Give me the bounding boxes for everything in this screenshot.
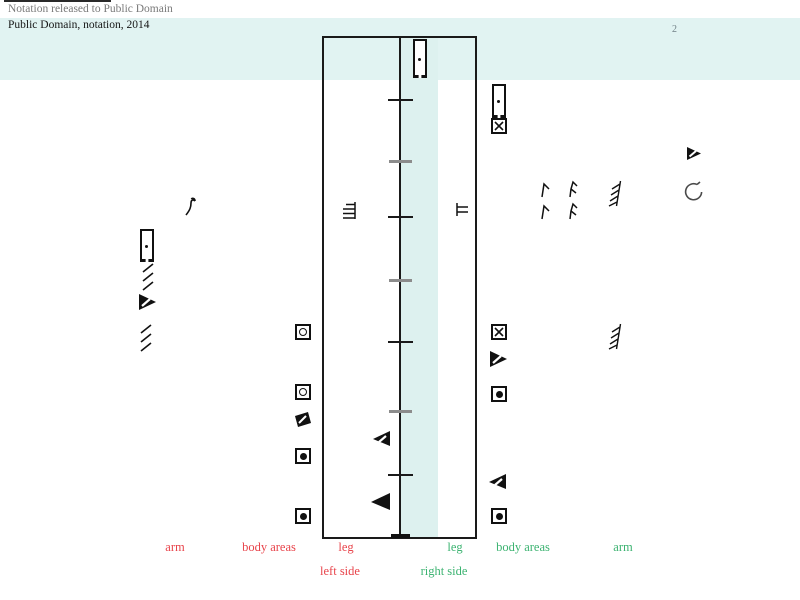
beat-tick [388, 474, 413, 476]
x-glyph [493, 326, 505, 338]
dot-square-icon [295, 448, 311, 464]
x-square-icon [491, 324, 507, 340]
beat-tick [388, 341, 413, 343]
presign-box-dot-icon [140, 229, 154, 262]
staff-centerline [399, 36, 401, 537]
release-note: Notation released to Public Domain [8, 3, 173, 16]
triple-bar-icon [342, 201, 357, 220]
presign-box-dot-icon [492, 84, 506, 118]
double-hook-flag-icon [567, 180, 580, 199]
dot-glyph [496, 391, 503, 398]
ring-square-icon [295, 384, 311, 400]
x-square-icon [491, 118, 507, 134]
ring-glyph [299, 328, 307, 336]
dot-square-icon [491, 508, 507, 524]
side-label-right: right side [421, 565, 468, 579]
dot-glyph [496, 513, 503, 520]
presign-dashed-base [413, 75, 427, 78]
hook-flag-icon [539, 202, 551, 220]
slashed-triangle-right-icon [488, 349, 509, 369]
dot-square-icon [491, 386, 507, 402]
top-edge-line [4, 0, 111, 2]
solid-triangle-left-icon [369, 491, 392, 511]
presign-dot [418, 58, 421, 61]
column-label-body-areas-right: body areas [496, 541, 550, 555]
dot-glyph [300, 453, 307, 460]
fringe-hatch-icon [608, 323, 624, 350]
x-glyph [493, 120, 505, 132]
page-number: 2 [672, 24, 677, 35]
rotation-arrow-icon [683, 181, 704, 204]
double-bar-icon [456, 202, 470, 217]
beat-tick [389, 160, 412, 163]
slashed-triangle-left-icon [372, 429, 392, 447]
black-slashed-square-icon [294, 411, 312, 428]
ring-glyph [299, 388, 307, 396]
dot-square-icon [295, 508, 311, 524]
column-label-body-areas-left: body areas [242, 541, 296, 555]
slashed-triangle-right-icon [137, 291, 158, 312]
beat-tick [388, 99, 413, 101]
staff-end-bar [391, 534, 410, 538]
presign-box-dot-icon [413, 39, 427, 78]
hook-flag-icon [539, 180, 551, 198]
presign-dot [145, 245, 148, 248]
presign-dot [497, 100, 500, 103]
beat-tick [389, 279, 412, 282]
triple-hatch-icon [140, 324, 153, 352]
ring-square-icon [295, 324, 311, 340]
slashed-triangle-right-icon [685, 145, 703, 162]
beat-tick [389, 410, 412, 413]
page-title: Public Domain, notation, 2014 [8, 19, 150, 32]
eighth-rest-hook-icon [183, 196, 198, 217]
triple-hatch-icon [142, 263, 155, 291]
double-hook-flag-icon [567, 202, 580, 221]
beat-tick [388, 216, 413, 218]
presign-dashed-base [140, 259, 154, 262]
notation-page: Notation released to Public Domain Publi… [0, 0, 800, 600]
side-label-left: left side [320, 565, 360, 579]
dot-glyph [300, 513, 307, 520]
slashed-triangle-left-icon [488, 472, 508, 490]
column-label-arm-right: arm [613, 541, 632, 555]
column-label-leg-right: leg [447, 541, 462, 555]
column-label-arm-left: arm [165, 541, 184, 555]
fringe-hatch-icon [608, 180, 624, 207]
column-label-leg-left: leg [338, 541, 353, 555]
